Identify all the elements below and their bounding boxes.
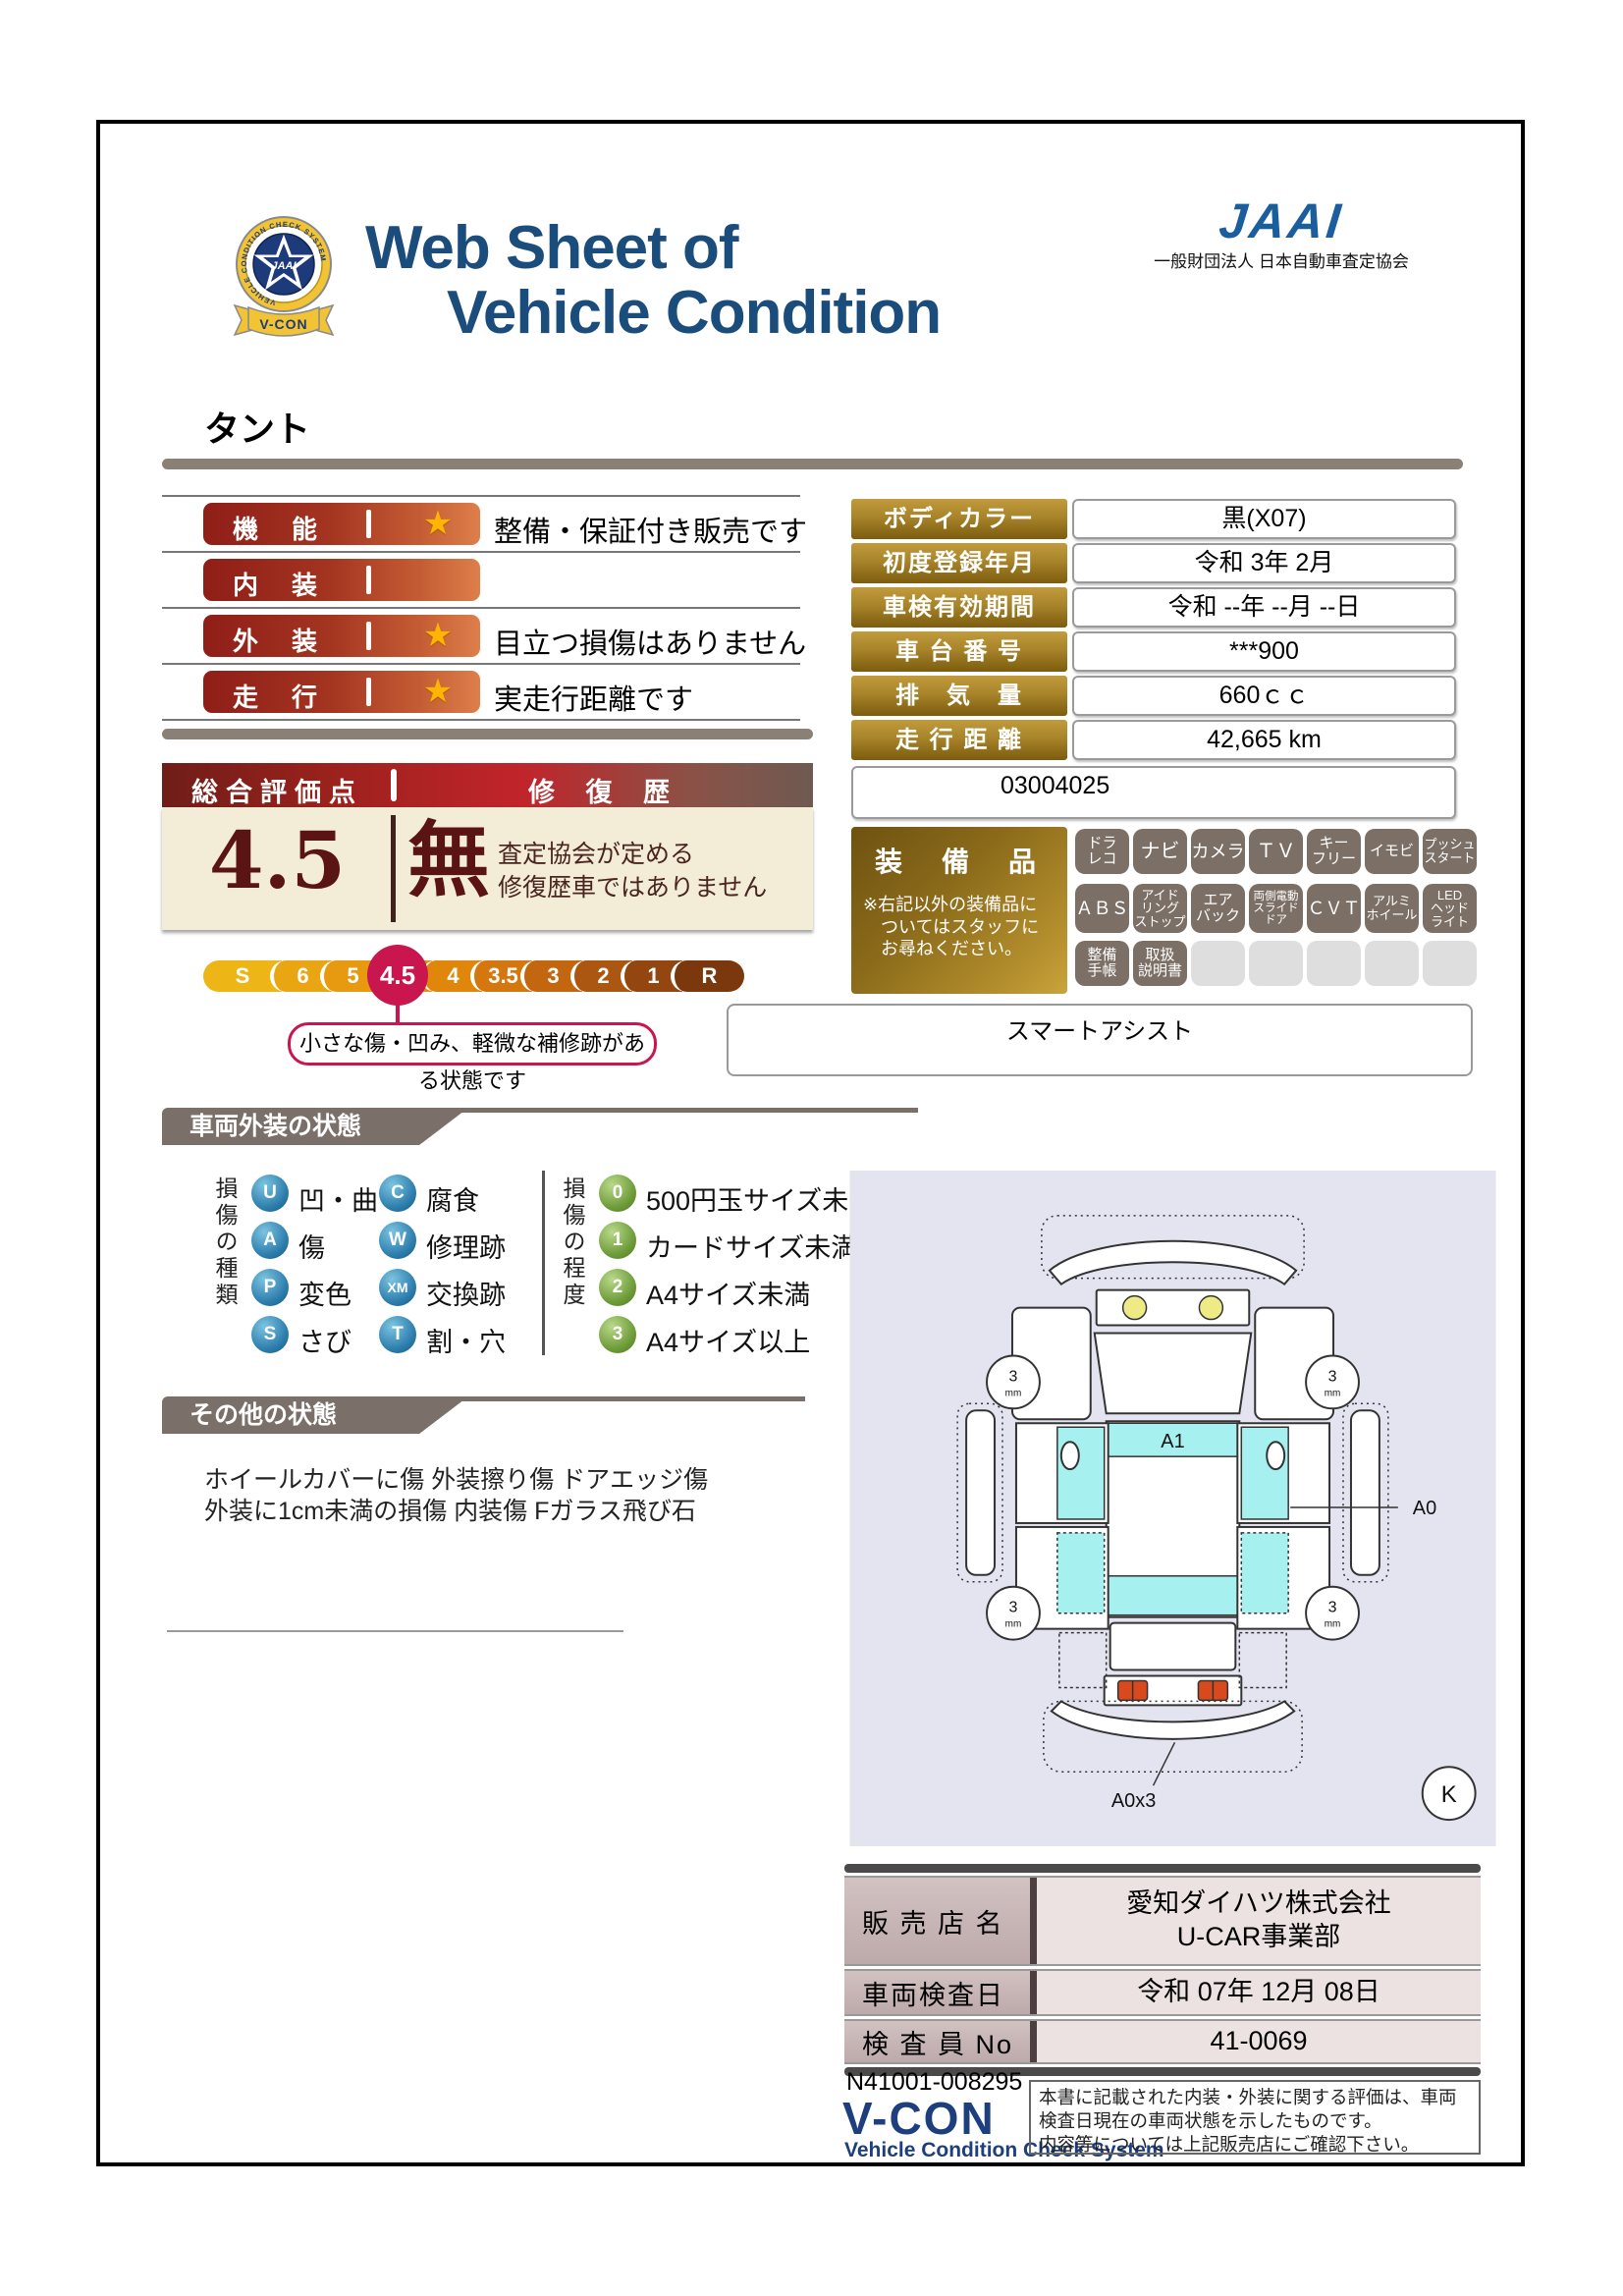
damage-degree-vertical-label: 損傷の程度	[556, 1176, 589, 1309]
disclaimer-box: 本書に記載された内装・外装に関する評価は、車両 検査日現在の車両状態を示したもの…	[1029, 2080, 1481, 2155]
rating-row-soukou: 走 行 ★ 実走行距離です	[162, 663, 800, 721]
disclaimer-line3: 内容等については上記販売店にご確認下さい。	[1039, 2133, 1471, 2157]
equip-badge-keyfree: キー フリー	[1307, 829, 1361, 874]
damage-label-p: 変色	[298, 1274, 352, 1312]
degree-label-1: カードサイズ未満	[646, 1227, 857, 1265]
equipment-title: 装 備 品	[875, 841, 1067, 880]
rating-label: 走 行	[233, 678, 321, 714]
damage-label-w: 修理跡	[426, 1227, 506, 1265]
equip-badge-power-slide-door: 両側電動 スライド ドア	[1249, 884, 1303, 933]
dealer-table: 販 売 店 名 愛知ダイハツ株式会社 U-CAR事業部 車両検査日 令和 07年…	[844, 1864, 1481, 2076]
info-label-chassis-number: 車 台 番 号	[851, 631, 1067, 672]
section-header-line	[447, 1108, 918, 1113]
damage-label-c: 腐食	[426, 1179, 479, 1218]
info-label-body-color: ボディカラー	[851, 499, 1067, 539]
tire-depth-unit: mm	[1325, 1388, 1341, 1398]
repair-text-line1: 査定協会が定める	[498, 835, 694, 870]
tire-depth-value: 3	[1328, 1368, 1337, 1385]
equip-badge-owners-manual: 取扱 説明書	[1133, 941, 1187, 986]
overall-score-label: 総合評価点	[191, 771, 363, 809]
info-value-inspection-validity: 令和 --年 --月 --日	[1072, 587, 1456, 628]
pill-separator	[366, 510, 371, 538]
damage-label-s: さび	[298, 1321, 352, 1359]
equipment-note-1: ※右記以外の装備品に	[863, 894, 1067, 916]
rating-comment: 目立つ損傷はありません	[494, 621, 806, 662]
section-header-line-2	[447, 1396, 805, 1401]
diagram-corner-label: K	[1441, 1781, 1457, 1808]
degree-code-0: 0	[599, 1175, 636, 1212]
star-icon: ★	[396, 504, 480, 543]
vcon-badge-logo: VEHICLE CONDITION CHECK SYSTEM JAAI V-CO…	[229, 211, 339, 347]
pill-separator	[366, 622, 371, 650]
dealer-label-inspector: 検 査 員 No	[844, 2021, 1037, 2062]
tire-depth-unit: mm	[1325, 1619, 1341, 1630]
pill-separator	[366, 566, 371, 594]
rating-label: 内 装	[233, 566, 321, 602]
damage-code-u: U	[251, 1175, 289, 1212]
rating-pill: 走 行 ★	[203, 671, 480, 713]
equip-badge-alloy-wheel: アルミ ホイール	[1365, 884, 1419, 933]
smart-assist-box: スマートアシスト	[727, 1004, 1473, 1076]
rating-comment: 整備・保証付き販売です	[494, 509, 807, 550]
equip-badge-abs: ＡＢＳ	[1075, 884, 1129, 933]
damage-label-u: 凹・曲	[298, 1179, 378, 1218]
dealer-value-inspection-date: 令和 07年 12月 08日	[1037, 1971, 1481, 2014]
other-condition-line2: 外装に1cm未満の損傷 内装傷 Fガラス飛び石	[204, 1492, 696, 1527]
overall-eval-body: 4.5 無 査定協会が定める 修復歴車ではありません	[162, 807, 813, 930]
diagram-rear-label: A0x3	[1111, 1790, 1156, 1812]
divider-bar-mid	[162, 729, 813, 739]
dealer-label-shop: 販 売 店 名	[844, 1878, 1037, 1964]
star-icon: ★	[396, 616, 480, 655]
info-value-mileage: 42,665 km	[1072, 720, 1456, 760]
badge-jaai-text: JAAI	[271, 260, 297, 272]
dealer-value-inspector: 41-0069	[1037, 2021, 1481, 2062]
degree-label-3: A4サイズ以上	[646, 1321, 810, 1359]
car-damage-diagram: A1 A0 A0x3 K 3 3 3 3 mm mm mm mm	[841, 1171, 1504, 1846]
jaai-logo-block: JAAI 一般財団法人 日本自動車査定協会	[1129, 196, 1434, 272]
disclaimer-line1: 本書に記載された内装・外装に関する評価は、車両	[1039, 2086, 1471, 2109]
jaai-logo: JAAI	[1126, 196, 1435, 246]
info-value-body-color: 黒(X07)	[1072, 499, 1456, 539]
repair-text-line2: 修復歴車ではありません	[498, 868, 767, 903]
repair-history-label: 修 復 歴	[397, 771, 813, 809]
damage-code-c: C	[379, 1175, 416, 1212]
info-value-displacement: 660ｃｃ	[1072, 676, 1456, 716]
degree-code-1: 1	[599, 1222, 636, 1259]
tire-depth-value: 3	[1328, 1600, 1337, 1616]
diagram-roof-label: A1	[1161, 1431, 1184, 1452]
rating-row-naisou: 内 装	[162, 551, 800, 607]
info-label-first-registration: 初度登録年月	[851, 543, 1067, 583]
rating-pill: 内 装	[203, 559, 480, 601]
page-title-line1: Web Sheet of	[365, 218, 738, 279]
rating-pill: 機 能 ★	[203, 503, 480, 545]
diagram-side-label: A0	[1413, 1498, 1436, 1519]
legend-divider	[542, 1171, 545, 1355]
damage-code-s: S	[251, 1316, 289, 1353]
badge-ribbon-text: V-CON	[259, 316, 307, 332]
equip-badge-maintenance-book: 整備 手帳	[1075, 941, 1129, 986]
rating-row-gaisou: 外 装 ★ 目立つ損傷はありません	[162, 607, 800, 663]
info-label-inspection-validity: 車検有効期間	[851, 587, 1067, 628]
rating-label: 機 能	[233, 510, 321, 546]
dealer-row-inspector: 検 査 員 No 41-0069	[844, 2019, 1481, 2064]
info-value-chassis-number: ***900	[1072, 631, 1456, 672]
equip-badge-push-start: プッシュ スタート	[1423, 829, 1477, 874]
equip-badge-camera: カメラ	[1191, 829, 1245, 874]
damage-types-vertical-label: 損傷の種類	[208, 1176, 242, 1309]
equipment-note-3: お尋ねください。	[881, 938, 1067, 960]
page-title-line2: Vehicle Condition	[447, 283, 941, 344]
rating-pill: 外 装 ★	[203, 615, 480, 657]
overall-eval-header: 総合評価点 修 復 歴	[162, 763, 813, 807]
rating-rows: 機 能 ★ 整備・保証付き販売です 内 装 外 装 ★ 目立つ損傷はありません	[162, 495, 800, 721]
degree-code-2: 2	[599, 1269, 636, 1306]
damage-code-xm: XM	[379, 1269, 416, 1306]
equip-badge-empty	[1191, 941, 1245, 986]
degree-code-3: 3	[599, 1316, 636, 1353]
equip-badge-empty	[1423, 941, 1477, 986]
dealer-row-shop: 販 売 店 名 愛知ダイハツ株式会社 U-CAR事業部	[844, 1876, 1481, 1966]
equipment-note-2: ついてはスタッフに	[881, 916, 1067, 939]
left-column-rule	[167, 1630, 623, 1632]
repair-flag: 無	[407, 819, 490, 902]
dealer-row-inspection-date: 車両検査日 令和 07年 12月 08日	[844, 1969, 1481, 2016]
equip-badge-airbag: エア バック	[1191, 884, 1245, 933]
jaai-organization-name: 一般財団法人 日本自動車査定協会	[1129, 247, 1434, 272]
rating-label: 外 装	[233, 622, 321, 658]
damage-code-p: P	[251, 1269, 289, 1306]
body-separator	[391, 815, 396, 922]
damage-label-xm: 交換跡	[426, 1274, 506, 1312]
info-note-number: 03004025	[851, 766, 1456, 819]
damage-label-t: 割・穴	[426, 1321, 506, 1359]
dealer-label-inspection-date: 車両検査日	[844, 1971, 1037, 2014]
selected-grade-marker: 4.5	[367, 945, 428, 1006]
pill-separator	[366, 678, 371, 706]
tire-depth-value: 3	[1009, 1368, 1018, 1385]
vehicle-name: タント	[204, 401, 310, 452]
selected-grade-stem	[396, 1004, 400, 1025]
info-value-first-registration: 令和 3年 2月	[1072, 543, 1456, 583]
equip-badge-empty	[1307, 941, 1361, 986]
damage-code-t: T	[379, 1316, 416, 1353]
info-label-displacement: 排 気 量	[851, 676, 1067, 716]
vcon-logo: V-CON	[842, 2092, 996, 2145]
equip-badge-cvt: ＣＶＴ	[1307, 884, 1361, 933]
overall-score-value: 4.5	[162, 817, 393, 903]
degree-label-2: A4サイズ未満	[646, 1274, 810, 1312]
table-top-bar	[844, 1864, 1481, 1873]
equip-badge-empty	[1249, 941, 1303, 986]
equip-badge-tv: ＴＶ	[1249, 829, 1303, 874]
tire-depth-value: 3	[1009, 1600, 1018, 1616]
info-label-mileage: 走 行 距 離	[851, 720, 1067, 760]
grade-r: R	[671, 960, 744, 992]
vehicle-condition-sheet: VEHICLE CONDITION CHECK SYSTEM JAAI V-CO…	[0, 0, 1623, 2296]
section-header-exterior: 車両外装の状態	[162, 1108, 468, 1145]
dealer-shop-line2: U-CAR事業部	[1177, 1921, 1341, 1954]
dealer-shop-line1: 愛知ダイハツ株式会社	[1126, 1887, 1390, 1921]
divider-bar-top	[162, 459, 1463, 469]
equip-badge-dorareco: ドラ レコ	[1075, 829, 1129, 874]
tire-depth-unit: mm	[1005, 1619, 1022, 1630]
equip-badge-immobilizer: イモビ	[1365, 829, 1419, 874]
equip-badge-empty	[1365, 941, 1419, 986]
dealer-value-shop: 愛知ダイハツ株式会社 U-CAR事業部	[1037, 1878, 1481, 1964]
damage-code-a: A	[251, 1222, 289, 1259]
rating-row-kinou: 機 能 ★ 整備・保証付き販売です	[162, 495, 800, 551]
tire-depth-unit: mm	[1005, 1388, 1022, 1398]
grade-scale: S 6 5 4 3.5 3 2 1 R	[203, 960, 744, 992]
damage-label-a: 傷	[298, 1227, 325, 1265]
rating-comment: 実走行距離です	[494, 677, 693, 718]
other-condition-line1: ホイールカバーに傷 外装擦り傷 ドアエッジ傷	[204, 1460, 708, 1496]
equip-badge-navi: ナビ	[1133, 829, 1187, 874]
disclaimer-line2: 検査日現在の車両状態を示したものです。	[1039, 2109, 1471, 2133]
star-icon: ★	[396, 672, 480, 711]
grade-callout: 小さな傷・凹み、軽微な補修跡がある状態です	[288, 1022, 657, 1066]
equip-badge-idling-stop: アイド リング ストップ	[1133, 884, 1187, 933]
equipment-panel: 装 備 品 ※右記以外の装備品に ついてはスタッフに お尋ねください。	[851, 827, 1067, 994]
section-header-other: その他の状態	[162, 1396, 468, 1434]
equip-badge-led-headlight: LED ヘッド ライト	[1423, 884, 1477, 933]
damage-code-w: W	[379, 1222, 416, 1259]
